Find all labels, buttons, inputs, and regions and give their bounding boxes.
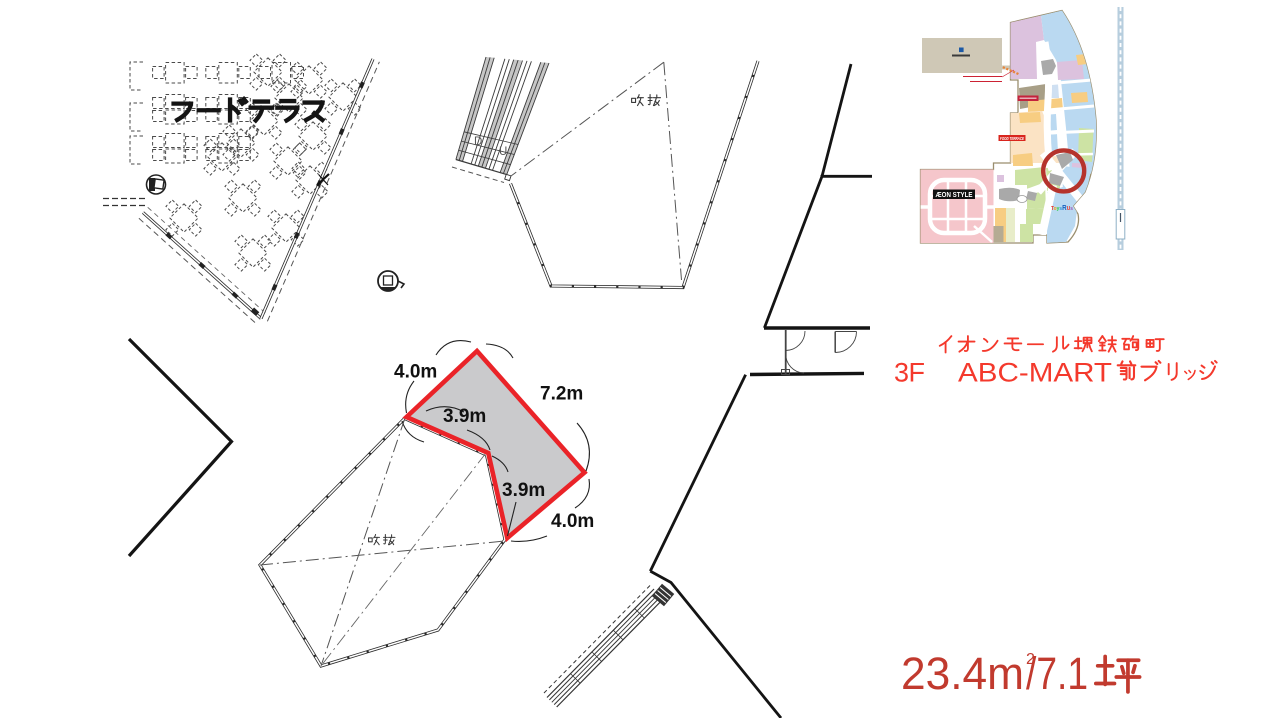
- svg-text:7.2m: 7.2m: [540, 384, 583, 405]
- svg-text:ToysRUs: ToysRUs: [1051, 205, 1073, 212]
- svg-text:4.0m: 4.0m: [394, 362, 437, 383]
- svg-text:4.0m: 4.0m: [551, 511, 594, 532]
- svg-text:ÆON STYLE: ÆON STYLE: [936, 190, 973, 199]
- svg-text:3.9m: 3.9m: [502, 480, 545, 501]
- svg-text:3.9m: 3.9m: [443, 406, 486, 427]
- svg-text:U: U: [499, 146, 507, 158]
- svg-text:3F: 3F: [894, 358, 925, 388]
- svg-text:/7.1: /7.1: [1026, 648, 1088, 699]
- svg-text:ABC-MART: ABC-MART: [958, 358, 1112, 388]
- svg-text:FOOD TERRACE: FOOD TERRACE: [1000, 136, 1024, 141]
- svg-text:D: D: [474, 136, 482, 148]
- svg-text:23.4m: 23.4m: [901, 648, 1024, 699]
